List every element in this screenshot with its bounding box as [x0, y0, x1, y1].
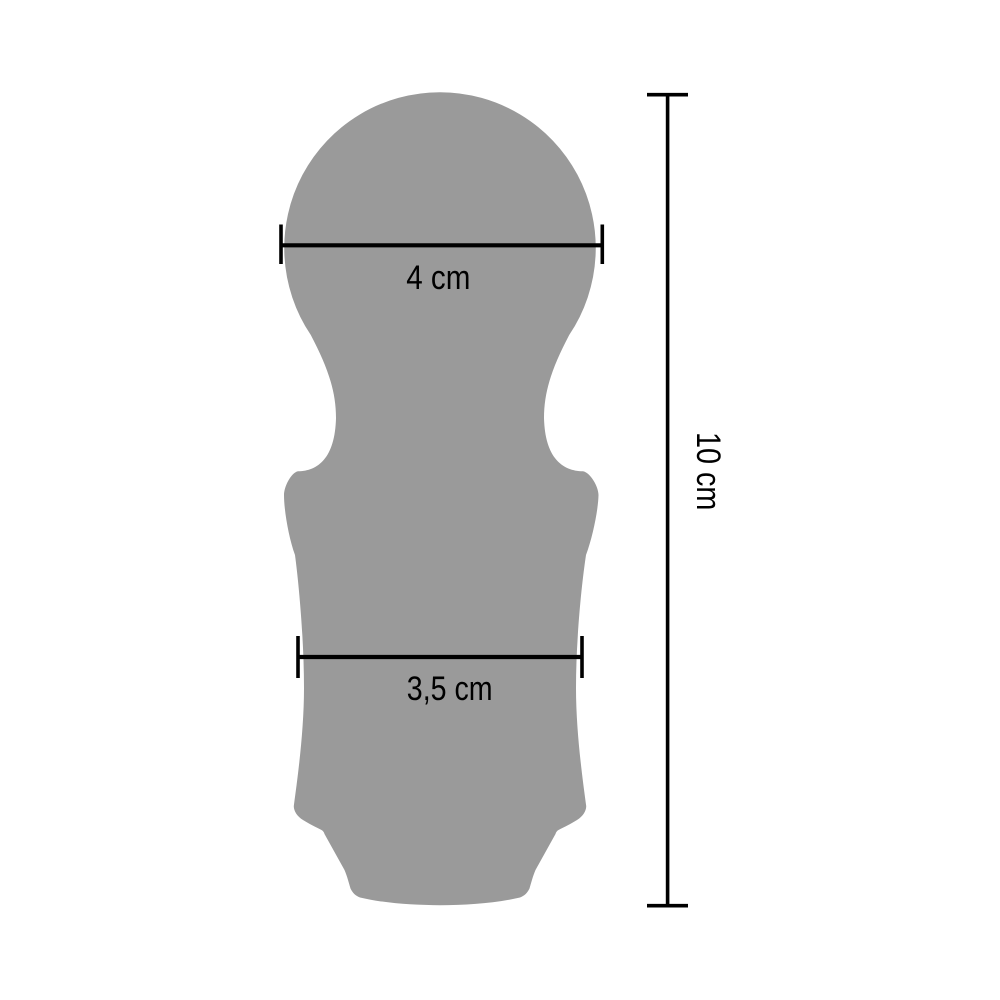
- svg-text:10 cm: 10 cm: [689, 432, 727, 511]
- svg-text:4 cm: 4 cm: [406, 259, 470, 297]
- svg-text:3,5 cm: 3,5 cm: [407, 670, 493, 708]
